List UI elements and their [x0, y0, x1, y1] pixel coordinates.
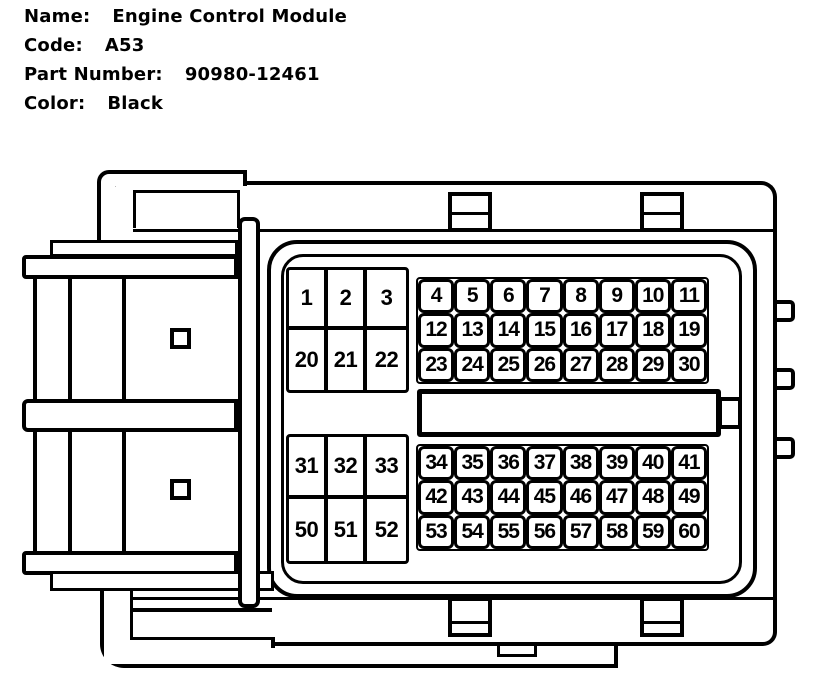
- pin-55: 55: [490, 515, 526, 549]
- pin-58: 58: [599, 515, 635, 549]
- pin-35: 35: [454, 446, 490, 480]
- pin-41: 41: [671, 446, 707, 480]
- top-guide-tab-2: [640, 192, 684, 232]
- pin-15: 15: [526, 313, 562, 347]
- pin-29: 29: [635, 348, 671, 382]
- pin-6: 6: [490, 279, 526, 313]
- pin-4: 4: [418, 279, 454, 313]
- lock-band-middle: [22, 399, 238, 432]
- pin-42: 42: [418, 480, 454, 514]
- top-tab-left-edge: [97, 186, 101, 242]
- pin-24: 24: [454, 348, 490, 382]
- pin-36: 36: [490, 446, 526, 480]
- lock-rib-2-upper: [68, 278, 72, 400]
- pin-44: 44: [490, 480, 526, 514]
- pin-8: 8: [563, 279, 599, 313]
- pin-1: 1: [289, 270, 328, 330]
- pin-54: 54: [454, 515, 490, 549]
- top-tab-inner-line: [133, 190, 240, 228]
- keying-slot: [417, 389, 721, 437]
- pin-grid-bottom-left: 313233505152: [286, 434, 409, 564]
- pin-20: 20: [289, 330, 328, 390]
- pin-47: 47: [599, 480, 635, 514]
- top-guide-tab-1-divider: [452, 212, 488, 215]
- connector-pinout-page: Name: Engine Control Module Code: A53 Pa…: [0, 0, 816, 688]
- connector-diagram: 123202122 456789101112131415161718192324…: [0, 0, 816, 688]
- pin-14: 14: [490, 313, 526, 347]
- pin-grid-top-left: 123202122: [286, 267, 409, 393]
- lock-rib-3-upper: [122, 278, 126, 400]
- pin-32: 32: [328, 437, 367, 499]
- pin-5: 5: [454, 279, 490, 313]
- pin-34: 34: [418, 446, 454, 480]
- pin-10: 10: [635, 279, 671, 313]
- pin-27: 27: [563, 348, 599, 382]
- lock-band-upper: [22, 255, 238, 279]
- top-guide-tab-1: [448, 192, 492, 232]
- pin-37: 37: [526, 446, 562, 480]
- pin-30: 30: [671, 348, 707, 382]
- flange-top-line: [133, 608, 272, 612]
- pin-12: 12: [418, 313, 454, 347]
- pin-11: 11: [671, 279, 707, 313]
- pin-18: 18: [635, 313, 671, 347]
- pin-57: 57: [563, 515, 599, 549]
- pin-45: 45: [526, 480, 562, 514]
- pin-26: 26: [526, 348, 562, 382]
- pin-52: 52: [367, 499, 406, 561]
- pin-53: 53: [418, 515, 454, 549]
- pin-43: 43: [454, 480, 490, 514]
- top-tab: [97, 170, 247, 186]
- lock-rib-1-lower: [33, 431, 37, 552]
- pin-46: 46: [563, 480, 599, 514]
- pin-28: 28: [599, 348, 635, 382]
- top-guide-tab-2-divider: [644, 212, 680, 215]
- pin-56: 56: [526, 515, 562, 549]
- pin-3: 3: [367, 270, 406, 330]
- pin-16: 16: [563, 313, 599, 347]
- bottom-guide-tab-1: [448, 597, 492, 637]
- pin-51: 51: [328, 499, 367, 561]
- pin-7: 7: [526, 279, 562, 313]
- pin-19: 19: [671, 313, 707, 347]
- pin-21: 21: [328, 330, 367, 390]
- pin-grid-bottom-right: 3435363738394041424344454647484953545556…: [416, 444, 709, 551]
- pin-17: 17: [599, 313, 635, 347]
- lock-tower: [238, 217, 260, 608]
- bottom-guide-tab-2-divider: [644, 621, 680, 624]
- flange-interior: [104, 640, 271, 664]
- pin-23: 23: [418, 348, 454, 382]
- pin-50: 50: [289, 499, 328, 561]
- bottom-index-notch: [497, 646, 537, 657]
- lock-window-upper: [170, 328, 191, 349]
- pin-48: 48: [635, 480, 671, 514]
- pin-33: 33: [367, 437, 406, 499]
- slot-key-tab: [718, 397, 742, 429]
- pin-38: 38: [563, 446, 599, 480]
- pin-39: 39: [599, 446, 635, 480]
- pin-13: 13: [454, 313, 490, 347]
- pin-49: 49: [671, 480, 707, 514]
- pin-2: 2: [328, 270, 367, 330]
- pin-grid-top-right: 4567891011121314151617181923242526272829…: [416, 277, 709, 384]
- lock-rib-1-upper: [33, 278, 37, 400]
- pin-40: 40: [635, 446, 671, 480]
- bottom-guide-tab-2: [640, 597, 684, 637]
- lock-rib-3-lower: [122, 431, 126, 552]
- pin-59: 59: [635, 515, 671, 549]
- pin-60: 60: [671, 515, 707, 549]
- pin-25: 25: [490, 348, 526, 382]
- pin-22: 22: [367, 330, 406, 390]
- lock-rib-2-lower: [68, 431, 72, 552]
- lock-window-lower: [170, 479, 191, 500]
- pin-31: 31: [289, 437, 328, 499]
- pin-9: 9: [599, 279, 635, 313]
- bottom-guide-tab-1-divider: [452, 621, 488, 624]
